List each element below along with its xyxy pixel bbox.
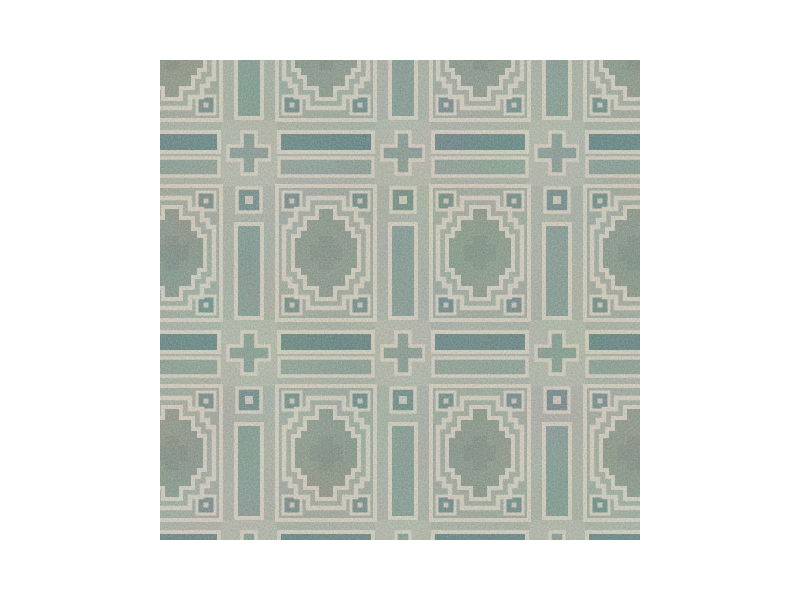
wool-texture-overlay <box>160 60 640 540</box>
rug-product-image <box>160 60 640 540</box>
page-background <box>0 0 800 600</box>
rug-pattern-svg <box>160 60 640 540</box>
